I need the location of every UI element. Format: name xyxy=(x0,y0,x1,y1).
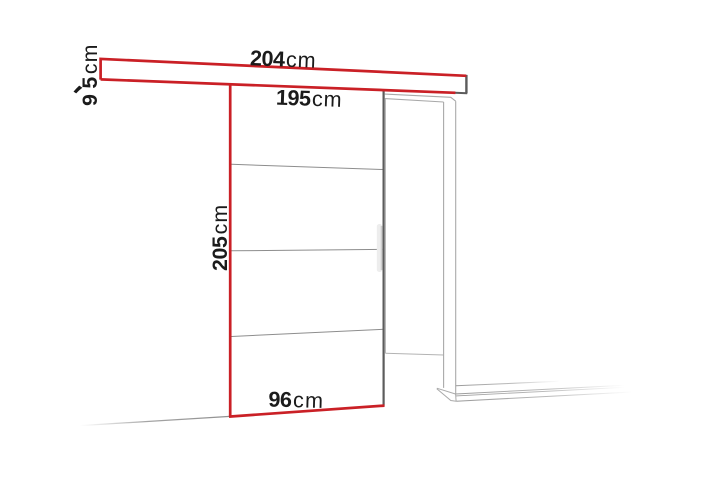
svg-text:205cm: 205cm xyxy=(208,204,232,271)
svg-text:204cm: 204cm xyxy=(250,45,317,73)
svg-text:195cm: 195cm xyxy=(276,85,343,112)
svg-text:95cm: 95cm xyxy=(78,44,102,106)
svg-text:96cm: 96cm xyxy=(268,387,324,413)
